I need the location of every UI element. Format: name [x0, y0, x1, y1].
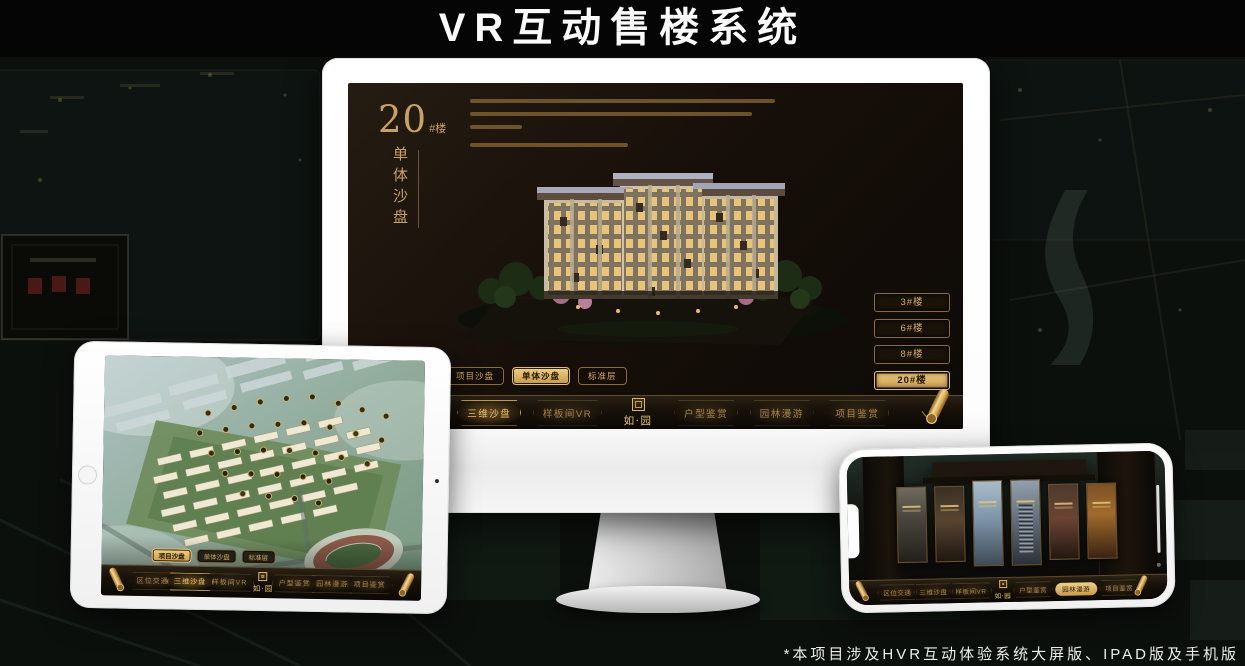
gallery-card-3[interactable]: [972, 480, 1004, 567]
scene-gallery: [896, 478, 1118, 569]
monitor-sub-tabs: 项目沙盘 单体沙盘 标准层: [446, 367, 627, 385]
scroll-handle-icon[interactable]: [853, 579, 870, 603]
nav-item-model-room-vr[interactable]: 样板间VR: [212, 577, 248, 588]
brand-logo: 如·园: [994, 580, 1011, 600]
tab-single-sandbox[interactable]: 单体沙盘: [196, 549, 236, 564]
gallery-card-6[interactable]: [1086, 483, 1118, 560]
gallery-card-5[interactable]: [1048, 483, 1080, 560]
block-heading: 20#楼 单体沙盘: [378, 101, 446, 242]
monitor-base: [556, 586, 760, 613]
phone-navbar: 区位交通 三维沙盘 样板间VR 如·园 户型鉴赏 园林漫游 项目鉴赏: [849, 574, 1167, 606]
brand-logo: 如·园: [253, 572, 274, 594]
floor-button-8[interactable]: 8#楼: [874, 345, 950, 364]
nav-item-location-traffic[interactable]: 区位交通: [137, 576, 169, 587]
floor-button-group: 3#楼 6#楼 8#楼 20#楼: [874, 293, 950, 390]
gallery-card-1[interactable]: [896, 487, 928, 564]
phone-notch: [847, 504, 859, 558]
nav-item-floorplan-gallery[interactable]: 户型鉴赏: [279, 578, 311, 589]
brand-logo-text: 如·园: [995, 590, 1012, 600]
tablet-screen: 项目沙盘 单体沙盘 标准层 区位交通 三维沙盘 样板间VR 如·园 户型鉴赏 园…: [101, 355, 425, 601]
phone-screen: 区位交通 三维沙盘 样板间VR 如·园 户型鉴赏 园林漫游 项目鉴赏: [846, 451, 1167, 606]
block-number-suffix: #楼: [429, 123, 446, 135]
nav-item-location-traffic[interactable]: 区位交通: [883, 587, 911, 598]
description-text-lines: [470, 99, 775, 156]
tablet-camera-icon: [435, 479, 439, 483]
brand-seal-icon: [632, 398, 645, 411]
brand-logo: 如·园: [624, 398, 653, 428]
brand-seal-icon: [259, 572, 268, 581]
brand-seal-icon: [999, 580, 1007, 588]
brand-logo-text: 如·园: [253, 583, 274, 594]
tab-project-sandbox[interactable]: 项目沙盘: [446, 367, 504, 385]
tab-single-sandbox[interactable]: 单体沙盘: [512, 367, 570, 385]
gallery-card-4[interactable]: [1010, 479, 1042, 566]
block-subtitle-vertical: 单体沙盘: [390, 146, 411, 242]
nav-item-3d-sandbox[interactable]: 三维沙盘: [919, 586, 947, 597]
tab-standard-floor[interactable]: 标准层: [578, 367, 627, 385]
apartment-building: [537, 173, 785, 299]
nav-item-project-gallery[interactable]: 项目鉴赏: [1105, 582, 1133, 593]
nav-item-project-gallery[interactable]: 项目鉴赏: [835, 406, 879, 420]
tablet-sub-tabs: 项目沙盘 单体沙盘 标准层: [152, 548, 276, 564]
nav-item-garden-tour[interactable]: 园林漫游: [1055, 582, 1097, 596]
nav-item-floorplan-gallery[interactable]: 户型鉴赏: [684, 406, 728, 420]
tablet-device: 项目沙盘 单体沙盘 标准层 区位交通 三维沙盘 样板间VR 如·园 户型鉴赏 园…: [70, 341, 452, 615]
tablet-home-button[interactable]: [78, 465, 97, 484]
nav-item-3d-sandbox[interactable]: 三维沙盘: [467, 406, 511, 420]
scroll-handle-icon[interactable]: [921, 385, 953, 427]
nav-item-garden-tour[interactable]: 园林漫游: [316, 579, 348, 590]
scroll-handle-icon[interactable]: [396, 570, 416, 598]
nav-item-garden-tour[interactable]: 园林漫游: [760, 406, 804, 420]
tab-standard-floor[interactable]: 标准层: [241, 550, 275, 565]
gallery-card-2[interactable]: [934, 486, 966, 563]
floor-button-3[interactable]: 3#楼: [874, 293, 950, 312]
monitor-stand: [585, 511, 730, 593]
tablet-navbar: 区位交通 三维沙盘 样板间VR 如·园 户型鉴赏 园林漫游 项目鉴赏: [101, 564, 421, 601]
scroll-handle-icon[interactable]: [1132, 573, 1149, 597]
nav-item-model-room-vr[interactable]: 样板间VR: [955, 585, 986, 596]
page-title: VR互动售楼系统: [0, 0, 1245, 57]
nav-item-model-room-vr[interactable]: 样板间VR: [543, 406, 592, 420]
plaque-sign-decor: [2, 235, 128, 339]
nav-item-project-gallery[interactable]: 项目鉴赏: [354, 580, 386, 591]
footnote-text: *本项目涉及HVR互动体验系统大屏版、IPAD版及手机版: [784, 643, 1239, 664]
phone-device: 区位交通 三维沙盘 样板间VR 如·园 户型鉴赏 园林漫游 项目鉴赏: [838, 443, 1175, 614]
nav-item-floorplan-gallery[interactable]: 户型鉴赏: [1019, 584, 1047, 595]
brand-logo-text: 如·园: [624, 413, 653, 428]
phone-camera-icon: [1157, 563, 1161, 567]
nav-item-3d-sandbox[interactable]: 三维沙盘: [174, 577, 206, 588]
page-canvas: VR互动售楼系统: [0, 0, 1245, 666]
scroll-handle-icon[interactable]: [106, 565, 126, 593]
tab-project-sandbox[interactable]: 项目沙盘: [152, 548, 192, 563]
block-number: 20: [378, 98, 427, 141]
floor-button-6[interactable]: 6#楼: [874, 319, 950, 338]
